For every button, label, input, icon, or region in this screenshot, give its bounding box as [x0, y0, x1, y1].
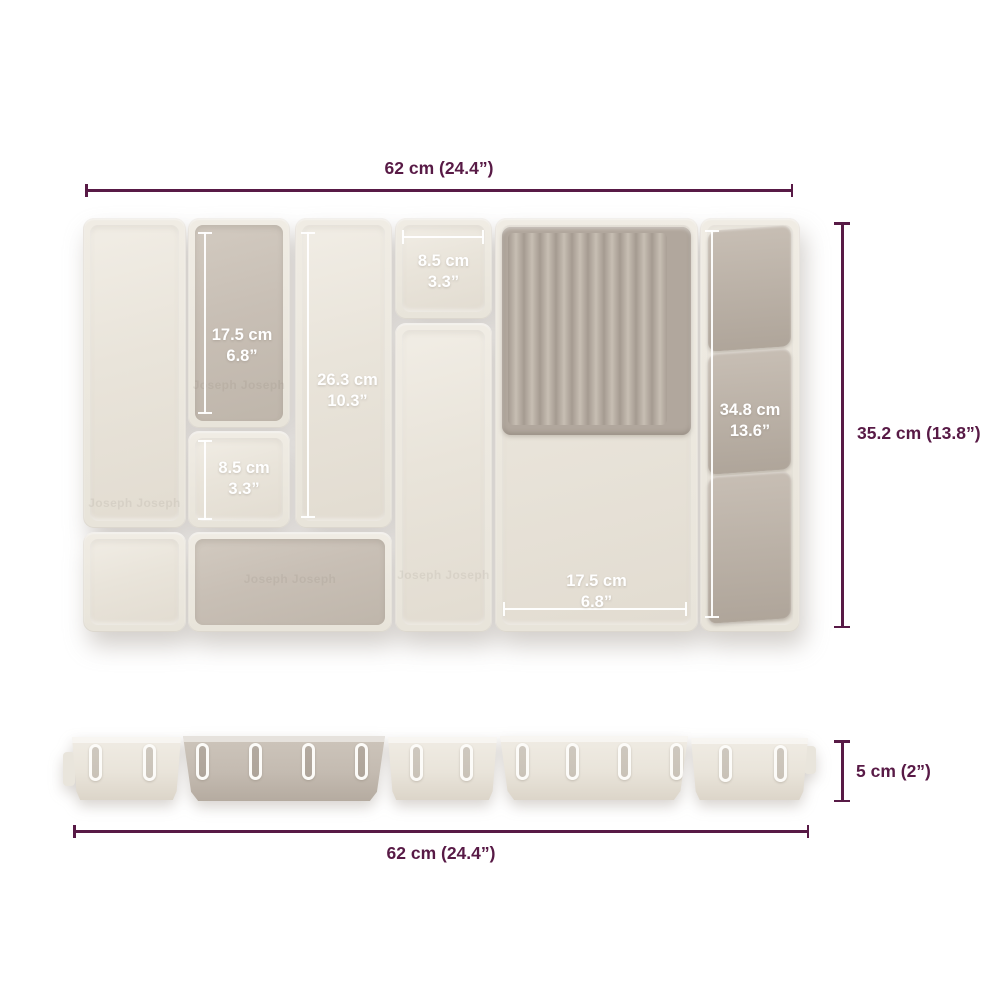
tray-slot: [670, 743, 683, 780]
tray-slot: [302, 743, 315, 780]
side-tray-2: [183, 736, 385, 801]
tray-slot: [355, 743, 368, 780]
tray-slot: [774, 745, 787, 782]
side-height-dimension-line: [841, 740, 844, 802]
tray-slot: [516, 743, 529, 780]
tray-slot: [196, 743, 209, 780]
side-height-dimension-label: 5 cm (2”): [856, 761, 931, 782]
bottom-width-dimension-label: 62 cm (24.4”): [341, 843, 541, 864]
side-tray-3: [388, 737, 497, 800]
side-tray-1: [72, 737, 181, 800]
bottom-width-dimension-line: [73, 830, 809, 833]
tray-slot: [719, 745, 732, 782]
tray-slot: [618, 743, 631, 780]
tray-slot: [460, 744, 473, 781]
tray-slot: [249, 743, 262, 780]
side-tray-tab-left: [63, 752, 75, 786]
product-diagram: 62 cm (24.4”) 35.2 cm (13.8”) Joseph Jos…: [0, 0, 1000, 1000]
tray-slot: [143, 744, 156, 781]
tray-slot: [566, 743, 579, 780]
side-tray-5: [691, 738, 808, 800]
tray-slot: [89, 744, 102, 781]
tray-slot: [410, 744, 423, 781]
side-tray-4: [500, 736, 688, 800]
